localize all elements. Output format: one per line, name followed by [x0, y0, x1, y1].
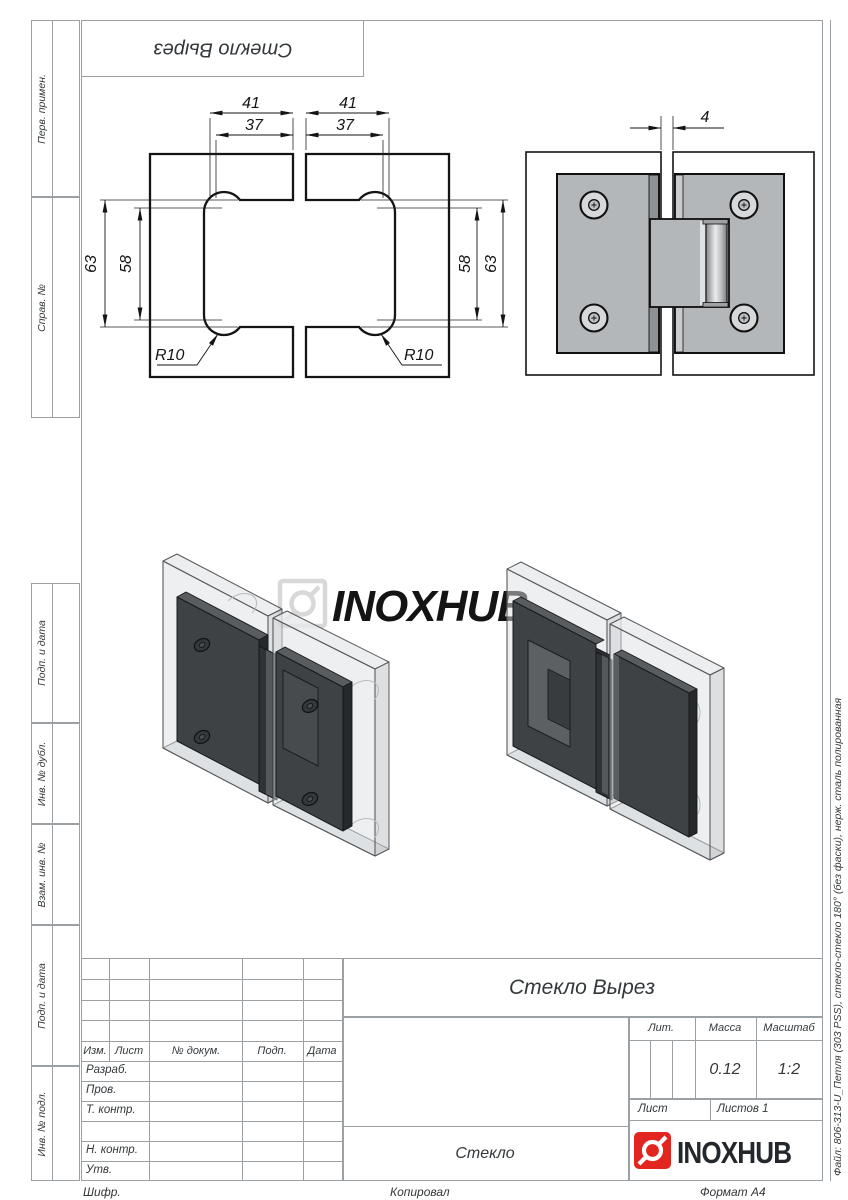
header-podp: Подп. — [257, 1045, 286, 1057]
mass-value: 0.12 — [709, 1061, 740, 1079]
file-note: Файл: 806-313-U_Петля (303 PSS), стекло-… — [832, 616, 844, 1176]
inoxhub-logo-text: INOXHUB — [677, 1135, 791, 1171]
lit-label: Лит. — [648, 1022, 674, 1034]
iso-view-right — [507, 562, 724, 860]
front-plate-left — [557, 174, 659, 353]
inoxhub-logo-glyph — [634, 1132, 671, 1169]
front-view: 4 — [526, 109, 814, 375]
grid-line — [81, 1020, 342, 1021]
dim-37-right: 37 — [336, 117, 355, 134]
grid-line — [756, 1016, 757, 1098]
grid-line — [81, 1061, 342, 1062]
drawing-sheet: Стекло Вырез Перв. примен. Справ. № Подп… — [0, 0, 848, 1200]
grid-line — [109, 958, 110, 1061]
dim-41-left: 41 — [242, 95, 260, 112]
footer-kopiroval: Копировал — [390, 1185, 450, 1199]
radius-label-left: R10 — [155, 347, 184, 364]
list-label: Лист — [638, 1103, 668, 1115]
mass-label: Масса — [709, 1022, 742, 1034]
row-razrab: Разраб. — [86, 1064, 128, 1076]
extension-lines — [100, 118, 508, 327]
dim-58-right: 58 — [457, 255, 474, 273]
header-list: Лист — [115, 1045, 143, 1057]
screw-icon — [581, 305, 608, 332]
scale-value: 1:2 — [778, 1061, 800, 1079]
grid-line — [628, 1098, 823, 1100]
grid-line — [342, 958, 344, 1181]
grid-line — [149, 958, 150, 1181]
radius-label-right: R10 — [404, 347, 433, 364]
grid-line — [342, 1016, 823, 1018]
grid-line — [650, 1040, 651, 1098]
grid-line — [672, 1040, 673, 1098]
grid-line — [81, 1121, 342, 1122]
footer-shifr: Шифр. — [83, 1185, 121, 1199]
grid-line — [81, 1081, 342, 1082]
grid-line — [81, 979, 342, 980]
listov-label: Листов 1 — [717, 1103, 768, 1115]
dim-41-right: 41 — [339, 95, 357, 112]
dim-58-left: 58 — [118, 255, 135, 273]
row-prov: Пров. — [86, 1084, 116, 1096]
row-n-kontr: Н. контр. — [86, 1144, 138, 1156]
glass-panel-left-outline — [150, 154, 293, 377]
cutout-view: 41 37 41 37 63 58 58 63 R10 R10 — [83, 95, 508, 377]
grid-line — [242, 958, 243, 1181]
screw-icon — [581, 192, 608, 219]
screw-icon — [731, 192, 758, 219]
grid-line — [303, 958, 304, 1181]
watermark-text: INOXHUB — [332, 582, 528, 631]
header-data: Дата — [307, 1045, 336, 1057]
grid-line — [81, 1000, 342, 1001]
footer-format: Формат A4 — [700, 1185, 766, 1199]
grid-line — [81, 1101, 342, 1102]
grid-line — [81, 1041, 342, 1042]
dim-63-right: 63 — [483, 255, 500, 273]
inoxhub-logo-icon — [634, 1132, 671, 1169]
grid-line — [81, 1161, 342, 1162]
grid-line — [628, 1040, 823, 1041]
header-dokum: № докум. — [172, 1045, 220, 1057]
row-utv: Утв. — [86, 1164, 112, 1176]
dim-63-left: 63 — [83, 255, 100, 273]
watermark: INOXHUB — [280, 581, 528, 631]
material-value: Стекло — [455, 1145, 514, 1163]
scale-label: Масштаб — [763, 1022, 814, 1034]
front-knuckle — [650, 219, 729, 307]
grid-line — [81, 1141, 342, 1142]
screw-icon — [731, 305, 758, 332]
grid-line — [695, 1016, 696, 1098]
drawing-title: Стекло Вырез — [509, 976, 655, 1000]
grid-line — [342, 1126, 628, 1127]
dim-gap-label: 4 — [701, 109, 710, 126]
dim-37-left: 37 — [245, 117, 264, 134]
row-t-kontr: Т. контр. — [86, 1104, 136, 1116]
gap-dimension: 4 — [630, 109, 724, 150]
grid-line — [710, 1098, 711, 1120]
header-izm: Изм. — [83, 1045, 106, 1057]
glass-panel-right-outline — [306, 154, 449, 377]
grid-line — [628, 1120, 823, 1121]
